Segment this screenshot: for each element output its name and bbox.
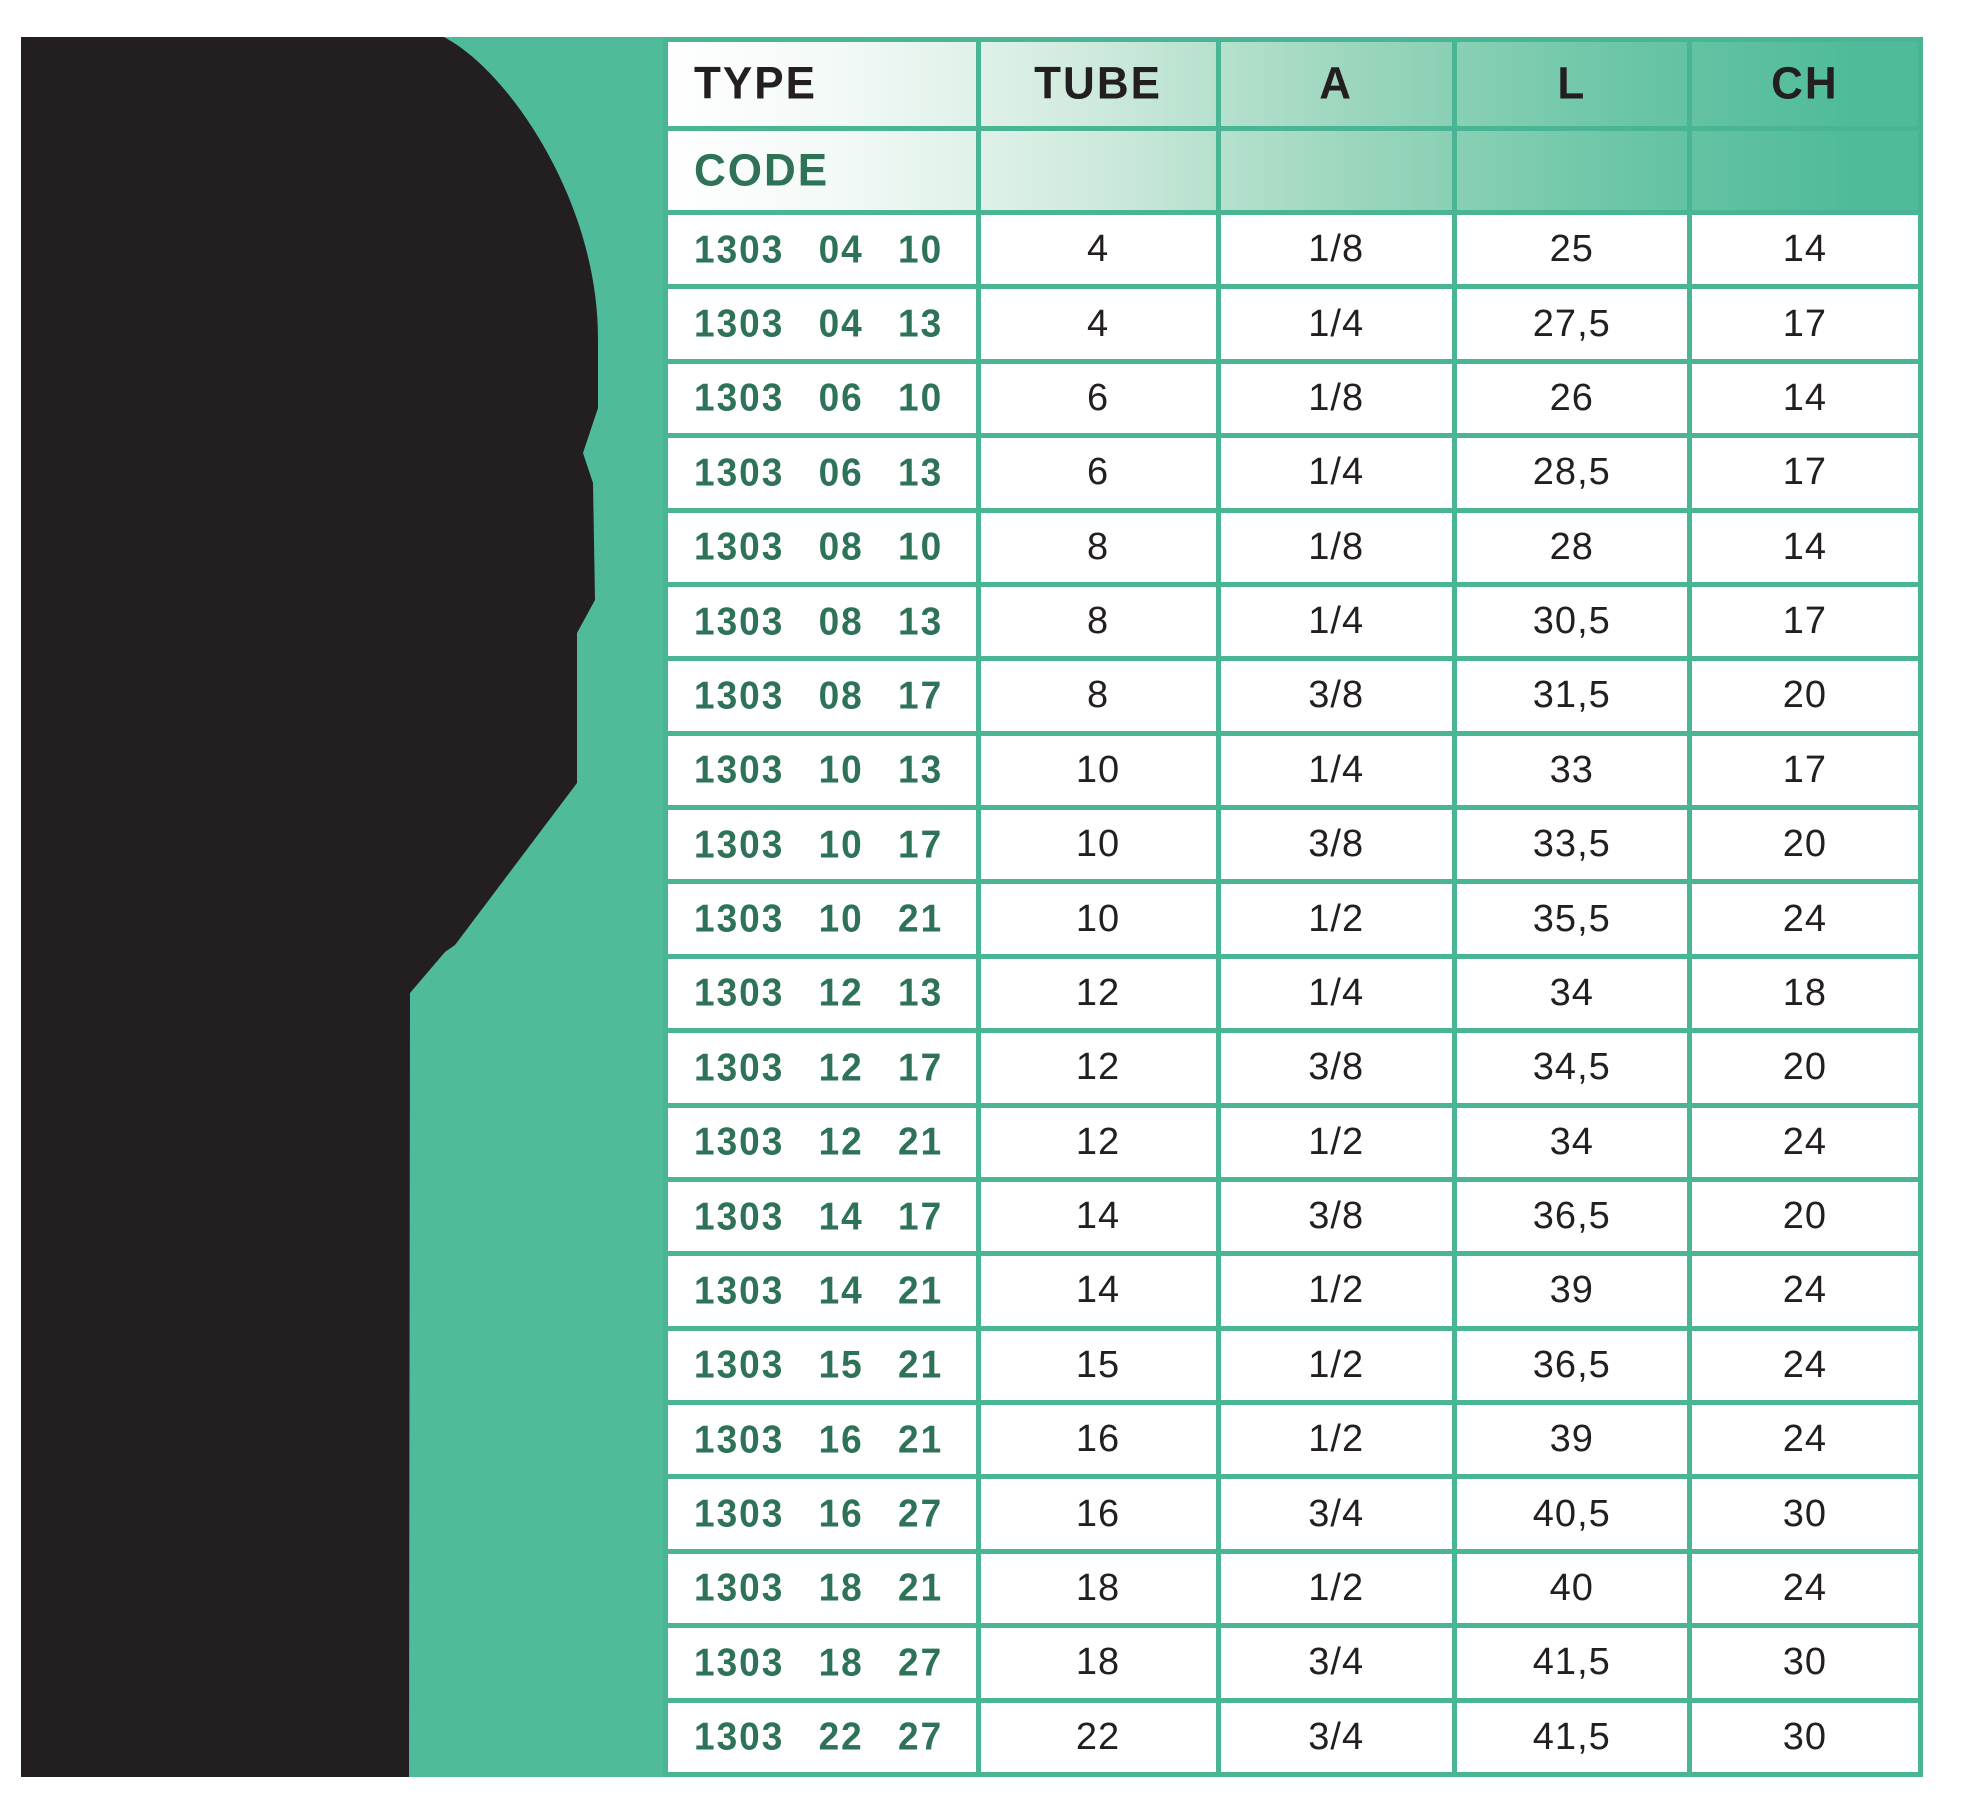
ch-value: 17 <box>1783 749 1827 792</box>
l-value: 39 <box>1550 1269 1594 1312</box>
a-value: 1/2 <box>1308 1269 1364 1312</box>
code-value: 1303 10 21 <box>694 897 943 942</box>
code-value: 1303 08 13 <box>694 599 943 644</box>
ch-value: 14 <box>1783 526 1827 569</box>
l-cell: 36,5 <box>1452 1182 1687 1251</box>
tube-cell: 6 <box>976 438 1216 507</box>
a-value: 1/2 <box>1308 1418 1364 1461</box>
ch-value: 24 <box>1783 1121 1827 1164</box>
ch-value: 20 <box>1783 1046 1827 1089</box>
table-row: 1303 08 10 8 1/8 28 14 <box>668 513 1918 582</box>
table-row: 1303 22 27 22 3/4 41,5 30 <box>668 1703 1918 1772</box>
l-value: 25 <box>1550 228 1594 271</box>
code-cell: 1303 18 21 <box>668 1554 976 1623</box>
code-header-label: CODE <box>694 145 829 197</box>
tube-value: 10 <box>1076 898 1120 941</box>
tube-cell: 15 <box>976 1331 1216 1400</box>
header-label-tube: TUBE <box>1034 58 1162 110</box>
l-value: 34 <box>1550 972 1594 1015</box>
tube-cell: 16 <box>976 1405 1216 1474</box>
ch-value: 24 <box>1783 1567 1827 1610</box>
a-cell: 3/8 <box>1216 1033 1452 1102</box>
code-cell: 1303 12 21 <box>668 1108 976 1177</box>
teal-panel: TYPE TUBE A L CH CODE <box>21 37 1923 1777</box>
l-value: 36,5 <box>1533 1195 1611 1238</box>
tube-cell: 4 <box>976 215 1216 284</box>
tube-value: 8 <box>1087 600 1109 643</box>
l-cell: 39 <box>1452 1405 1687 1474</box>
tube-cell: 14 <box>976 1182 1216 1251</box>
tube-value: 16 <box>1076 1493 1120 1536</box>
l-value: 34,5 <box>1533 1046 1611 1089</box>
l-value: 36,5 <box>1533 1344 1611 1387</box>
a-value: 3/8 <box>1308 674 1364 717</box>
code-cell: 1303 12 17 <box>668 1033 976 1102</box>
ch-value: 20 <box>1783 823 1827 866</box>
a-value: 1/8 <box>1308 526 1364 569</box>
l-value: 41,5 <box>1533 1641 1611 1684</box>
ch-value: 18 <box>1783 972 1827 1015</box>
code-value: 1303 12 13 <box>694 971 943 1016</box>
code-value: 1303 04 13 <box>694 302 943 347</box>
a-cell: 3/8 <box>1216 1182 1452 1251</box>
l-cell: 28,5 <box>1452 438 1687 507</box>
code-value: 1303 14 21 <box>694 1269 943 1314</box>
tube-cell: 8 <box>976 587 1216 656</box>
tube-cell: 8 <box>976 661 1216 730</box>
tube-cell: 8 <box>976 513 1216 582</box>
a-value: 3/4 <box>1308 1716 1364 1759</box>
code-value: 1303 16 27 <box>694 1492 943 1537</box>
a-cell: 3/8 <box>1216 810 1452 879</box>
tube-cell: 12 <box>976 959 1216 1028</box>
code-row-empty-l <box>1452 131 1687 210</box>
tube-cell: 18 <box>976 1554 1216 1623</box>
a-cell: 1/2 <box>1216 1256 1452 1325</box>
tube-value: 12 <box>1076 1121 1120 1164</box>
a-value: 1/4 <box>1308 972 1364 1015</box>
l-cell: 27,5 <box>1452 289 1687 358</box>
ch-cell: 17 <box>1687 289 1918 358</box>
ch-cell: 24 <box>1687 884 1918 953</box>
tube-cell: 14 <box>976 1256 1216 1325</box>
code-value: 1303 08 17 <box>694 674 943 719</box>
tube-value: 6 <box>1087 451 1109 494</box>
l-value: 30,5 <box>1533 600 1611 643</box>
code-cell: 1303 16 27 <box>668 1479 976 1548</box>
code-value: 1303 08 10 <box>694 525 943 570</box>
a-cell: 1/2 <box>1216 884 1452 953</box>
table-row: 1303 15 21 15 1/2 36,5 24 <box>668 1331 1918 1400</box>
a-cell: 1/2 <box>1216 1108 1452 1177</box>
a-cell: 1/2 <box>1216 1405 1452 1474</box>
code-row-empty-a <box>1216 131 1452 210</box>
tube-value: 14 <box>1076 1195 1120 1238</box>
code-cell: 1303 06 10 <box>668 364 976 433</box>
ch-cell: 14 <box>1687 215 1918 284</box>
code-cell: 1303 15 21 <box>668 1331 976 1400</box>
header-cell-a: A <box>1216 42 1452 126</box>
code-value: 1303 10 17 <box>694 822 943 867</box>
code-value: 1303 18 27 <box>694 1641 943 1686</box>
a-value: 1/2 <box>1308 1121 1364 1164</box>
l-value: 28 <box>1550 526 1594 569</box>
code-cell: 1303 08 13 <box>668 587 976 656</box>
l-cell: 31,5 <box>1452 661 1687 730</box>
table-row: 1303 10 17 10 3/8 33,5 20 <box>668 810 1918 879</box>
ch-cell: 14 <box>1687 513 1918 582</box>
a-value: 1/2 <box>1308 1344 1364 1387</box>
l-cell: 33 <box>1452 736 1687 805</box>
a-value: 3/4 <box>1308 1493 1364 1536</box>
a-cell: 1/8 <box>1216 215 1452 284</box>
a-value: 1/8 <box>1308 228 1364 271</box>
a-value: 3/8 <box>1308 1195 1364 1238</box>
table-row: 1303 10 13 10 1/4 33 17 <box>668 736 1918 805</box>
ch-value: 17 <box>1783 451 1827 494</box>
table-row: 1303 12 21 12 1/2 34 24 <box>668 1108 1918 1177</box>
header-cell-ch: CH <box>1687 42 1918 126</box>
a-cell: 3/4 <box>1216 1479 1452 1548</box>
ch-cell: 17 <box>1687 736 1918 805</box>
code-value: 1303 14 17 <box>694 1194 943 1239</box>
ch-value: 30 <box>1783 1641 1827 1684</box>
code-cell: 1303 06 13 <box>668 438 976 507</box>
tube-value: 18 <box>1076 1641 1120 1684</box>
l-value: 40 <box>1550 1567 1594 1610</box>
table-row: 1303 18 27 18 3/4 41,5 30 <box>668 1628 1918 1697</box>
a-cell: 1/8 <box>1216 513 1452 582</box>
a-cell: 1/4 <box>1216 587 1452 656</box>
header-cell-l: L <box>1452 42 1687 126</box>
table-row: 1303 04 10 4 1/8 25 14 <box>668 215 1918 284</box>
code-value: 1303 18 21 <box>694 1566 943 1611</box>
table-row: 1303 06 13 6 1/4 28,5 17 <box>668 438 1918 507</box>
l-value: 33,5 <box>1533 823 1611 866</box>
code-cell: 1303 08 17 <box>668 661 976 730</box>
tube-value: 12 <box>1076 972 1120 1015</box>
header-label-a: A <box>1319 58 1353 110</box>
a-cell: 3/4 <box>1216 1628 1452 1697</box>
ch-cell: 30 <box>1687 1703 1918 1772</box>
a-value: 3/8 <box>1308 1046 1364 1089</box>
l-value: 34 <box>1550 1121 1594 1164</box>
a-value: 1/4 <box>1308 749 1364 792</box>
ch-cell: 20 <box>1687 1033 1918 1102</box>
l-cell: 26 <box>1452 364 1687 433</box>
table-row: 1303 18 21 18 1/2 40 24 <box>668 1554 1918 1623</box>
a-cell: 3/8 <box>1216 661 1452 730</box>
table-row: 1303 14 17 14 3/8 36,5 20 <box>668 1182 1918 1251</box>
a-cell: 1/2 <box>1216 1554 1452 1623</box>
tube-value: 14 <box>1076 1269 1120 1312</box>
l-cell: 34,5 <box>1452 1033 1687 1102</box>
a-value: 1/8 <box>1308 377 1364 420</box>
table-row: 1303 12 13 12 1/4 34 18 <box>668 959 1918 1028</box>
l-cell: 40 <box>1452 1554 1687 1623</box>
table-row: 1303 16 21 16 1/2 39 24 <box>668 1405 1918 1474</box>
product-silhouette-shape <box>21 37 598 1777</box>
code-header-cell: CODE <box>668 131 976 210</box>
catalog-page: TYPE TUBE A L CH CODE <box>0 0 1961 1816</box>
ch-cell: 24 <box>1687 1405 1918 1474</box>
code-cell: 1303 10 21 <box>668 884 976 953</box>
ch-cell: 20 <box>1687 1182 1918 1251</box>
header-label-type: TYPE <box>694 58 817 110</box>
table-row: 1303 16 27 16 3/4 40,5 30 <box>668 1479 1918 1548</box>
l-value: 28,5 <box>1533 451 1611 494</box>
l-value: 26 <box>1550 377 1594 420</box>
tube-cell: 22 <box>976 1703 1216 1772</box>
tube-cell: 16 <box>976 1479 1216 1548</box>
code-row-empty-ch <box>1687 131 1918 210</box>
tube-value: 15 <box>1076 1344 1120 1387</box>
ch-cell: 24 <box>1687 1331 1918 1400</box>
a-value: 1/2 <box>1308 898 1364 941</box>
ch-cell: 17 <box>1687 587 1918 656</box>
ch-cell: 20 <box>1687 810 1918 879</box>
table-header-row: TYPE TUBE A L CH <box>668 42 1918 126</box>
header-label-l: L <box>1557 58 1586 110</box>
l-cell: 25 <box>1452 215 1687 284</box>
a-value: 3/8 <box>1308 823 1364 866</box>
code-cell: 1303 12 13 <box>668 959 976 1028</box>
l-value: 39 <box>1550 1418 1594 1461</box>
tube-cell: 10 <box>976 884 1216 953</box>
l-cell: 40,5 <box>1452 1479 1687 1548</box>
ch-value: 14 <box>1783 228 1827 271</box>
code-cell: 1303 04 13 <box>668 289 976 358</box>
table-row: 1303 08 13 8 1/4 30,5 17 <box>668 587 1918 656</box>
table-code-row: CODE <box>668 131 1918 210</box>
ch-value: 24 <box>1783 1269 1827 1312</box>
tube-value: 4 <box>1087 303 1109 346</box>
ch-cell: 24 <box>1687 1108 1918 1177</box>
tube-value: 10 <box>1076 749 1120 792</box>
l-cell: 39 <box>1452 1256 1687 1325</box>
code-cell: 1303 10 17 <box>668 810 976 879</box>
l-cell: 33,5 <box>1452 810 1687 879</box>
tube-value: 4 <box>1087 228 1109 271</box>
header-cell-tube: TUBE <box>976 42 1216 126</box>
code-cell: 1303 22 27 <box>668 1703 976 1772</box>
l-cell: 34 <box>1452 1108 1687 1177</box>
a-value: 3/4 <box>1308 1641 1364 1684</box>
table-row: 1303 10 21 10 1/2 35,5 24 <box>668 884 1918 953</box>
ch-value: 24 <box>1783 1344 1827 1387</box>
l-value: 41,5 <box>1533 1716 1611 1759</box>
code-value: 1303 10 13 <box>694 748 943 793</box>
ch-cell: 20 <box>1687 661 1918 730</box>
table-row: 1303 12 17 12 3/8 34,5 20 <box>668 1033 1918 1102</box>
header-label-ch: CH <box>1771 58 1839 110</box>
l-cell: 36,5 <box>1452 1331 1687 1400</box>
a-cell: 1/4 <box>1216 736 1452 805</box>
code-value: 1303 16 21 <box>694 1417 943 1462</box>
code-value: 1303 06 13 <box>694 451 943 496</box>
tube-cell: 18 <box>976 1628 1216 1697</box>
header-cell-type: TYPE <box>668 42 976 126</box>
tube-value: 6 <box>1087 377 1109 420</box>
code-value: 1303 06 10 <box>694 376 943 421</box>
l-value: 35,5 <box>1533 898 1611 941</box>
table-row: 1303 08 17 8 3/8 31,5 20 <box>668 661 1918 730</box>
l-cell: 34 <box>1452 959 1687 1028</box>
tube-value: 18 <box>1076 1567 1120 1610</box>
l-cell: 28 <box>1452 513 1687 582</box>
spec-table: TYPE TUBE A L CH CODE <box>663 37 1923 1777</box>
ch-cell: 17 <box>1687 438 1918 507</box>
code-value: 1303 22 27 <box>694 1715 943 1760</box>
code-value: 1303 04 10 <box>694 227 943 272</box>
l-value: 27,5 <box>1533 303 1611 346</box>
table-row: 1303 14 21 14 1/2 39 24 <box>668 1256 1918 1325</box>
l-cell: 41,5 <box>1452 1628 1687 1697</box>
a-value: 1/2 <box>1308 1567 1364 1610</box>
tube-cell: 10 <box>976 736 1216 805</box>
a-value: 1/4 <box>1308 600 1364 643</box>
ch-cell: 18 <box>1687 959 1918 1028</box>
ch-value: 20 <box>1783 1195 1827 1238</box>
table-row: 1303 04 13 4 1/4 27,5 17 <box>668 289 1918 358</box>
l-cell: 41,5 <box>1452 1703 1687 1772</box>
ch-value: 20 <box>1783 674 1827 717</box>
ch-cell: 14 <box>1687 364 1918 433</box>
ch-value: 30 <box>1783 1716 1827 1759</box>
code-cell: 1303 14 21 <box>668 1256 976 1325</box>
ch-cell: 30 <box>1687 1479 1918 1548</box>
ch-cell: 24 <box>1687 1256 1918 1325</box>
code-cell: 1303 16 21 <box>668 1405 976 1474</box>
l-cell: 35,5 <box>1452 884 1687 953</box>
tube-value: 8 <box>1087 526 1109 569</box>
l-cell: 30,5 <box>1452 587 1687 656</box>
tube-value: 16 <box>1076 1418 1120 1461</box>
tube-cell: 4 <box>976 289 1216 358</box>
tube-value: 10 <box>1076 823 1120 866</box>
l-value: 40,5 <box>1533 1493 1611 1536</box>
a-cell: 1/4 <box>1216 959 1452 1028</box>
code-cell: 1303 14 17 <box>668 1182 976 1251</box>
a-cell: 1/8 <box>1216 364 1452 433</box>
tube-cell: 12 <box>976 1033 1216 1102</box>
a-cell: 3/4 <box>1216 1703 1452 1772</box>
a-cell: 1/4 <box>1216 438 1452 507</box>
tube-cell: 12 <box>976 1108 1216 1177</box>
ch-value: 24 <box>1783 1418 1827 1461</box>
tube-cell: 10 <box>976 810 1216 879</box>
ch-value: 17 <box>1783 600 1827 643</box>
a-value: 1/4 <box>1308 303 1364 346</box>
code-row-empty-tube <box>976 131 1216 210</box>
tube-cell: 6 <box>976 364 1216 433</box>
tube-value: 22 <box>1076 1716 1120 1759</box>
code-value: 1303 12 21 <box>694 1120 943 1165</box>
ch-value: 17 <box>1783 303 1827 346</box>
l-value: 33 <box>1550 749 1594 792</box>
a-cell: 1/2 <box>1216 1331 1452 1400</box>
code-value: 1303 15 21 <box>694 1343 943 1388</box>
code-cell: 1303 08 10 <box>668 513 976 582</box>
ch-value: 24 <box>1783 898 1827 941</box>
code-cell: 1303 18 27 <box>668 1628 976 1697</box>
ch-value: 14 <box>1783 377 1827 420</box>
table-row: 1303 06 10 6 1/8 26 14 <box>668 364 1918 433</box>
code-cell: 1303 04 10 <box>668 215 976 284</box>
ch-cell: 30 <box>1687 1628 1918 1697</box>
code-cell: 1303 10 13 <box>668 736 976 805</box>
a-cell: 1/4 <box>1216 289 1452 358</box>
a-value: 1/4 <box>1308 451 1364 494</box>
tube-value: 12 <box>1076 1046 1120 1089</box>
ch-value: 30 <box>1783 1493 1827 1536</box>
product-silhouette-image <box>21 37 621 1777</box>
l-value: 31,5 <box>1533 674 1611 717</box>
code-value: 1303 12 17 <box>694 1046 943 1091</box>
ch-cell: 24 <box>1687 1554 1918 1623</box>
tube-value: 8 <box>1087 674 1109 717</box>
